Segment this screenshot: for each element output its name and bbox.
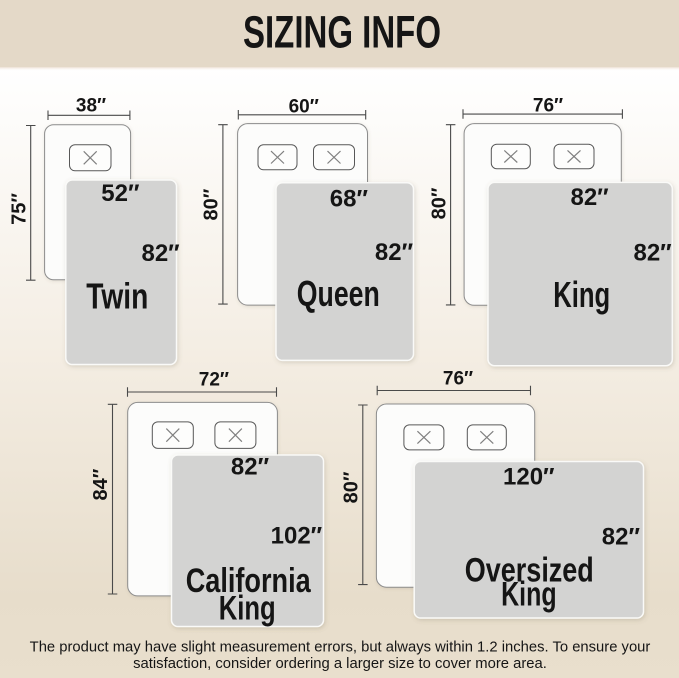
svg-text:76″: 76″ — [443, 369, 473, 390]
svg-text:King: King — [501, 576, 557, 614]
svg-text:60″: 60″ — [289, 97, 319, 118]
svg-text:Twin: Twin — [86, 275, 148, 316]
svg-text:82″: 82″ — [375, 239, 414, 266]
svg-text:120″: 120″ — [503, 464, 555, 491]
svg-text:80″: 80″ — [200, 188, 222, 220]
svg-text:82″: 82″ — [231, 454, 270, 481]
svg-text:82″: 82″ — [141, 240, 180, 267]
svg-text:King: King — [553, 274, 610, 315]
svg-text:52″: 52″ — [101, 180, 140, 207]
svg-text:80″: 80″ — [429, 187, 451, 219]
svg-text:82″: 82″ — [602, 524, 641, 551]
svg-text:82″: 82″ — [570, 184, 609, 211]
svg-text:102″: 102″ — [271, 523, 323, 550]
svg-text:King: King — [219, 589, 276, 627]
svg-text:68″: 68″ — [330, 186, 369, 213]
svg-text:75″: 75″ — [9, 193, 31, 225]
svg-text:38″: 38″ — [76, 96, 106, 117]
svg-text:82″: 82″ — [633, 240, 672, 267]
svg-text:76″: 76″ — [533, 96, 563, 117]
svg-text:84″: 84″ — [90, 468, 112, 500]
svg-text:SIZING INFO: SIZING INFO — [243, 7, 441, 58]
svg-text:The product may have slight me: The product may have slight measurement … — [30, 640, 651, 656]
svg-text:Queen: Queen — [297, 273, 380, 314]
svg-text:satisfaction, consider orderin: satisfaction, consider ordering a larger… — [133, 656, 547, 672]
svg-text:72″: 72″ — [199, 370, 229, 391]
svg-text:80″: 80″ — [340, 471, 362, 503]
